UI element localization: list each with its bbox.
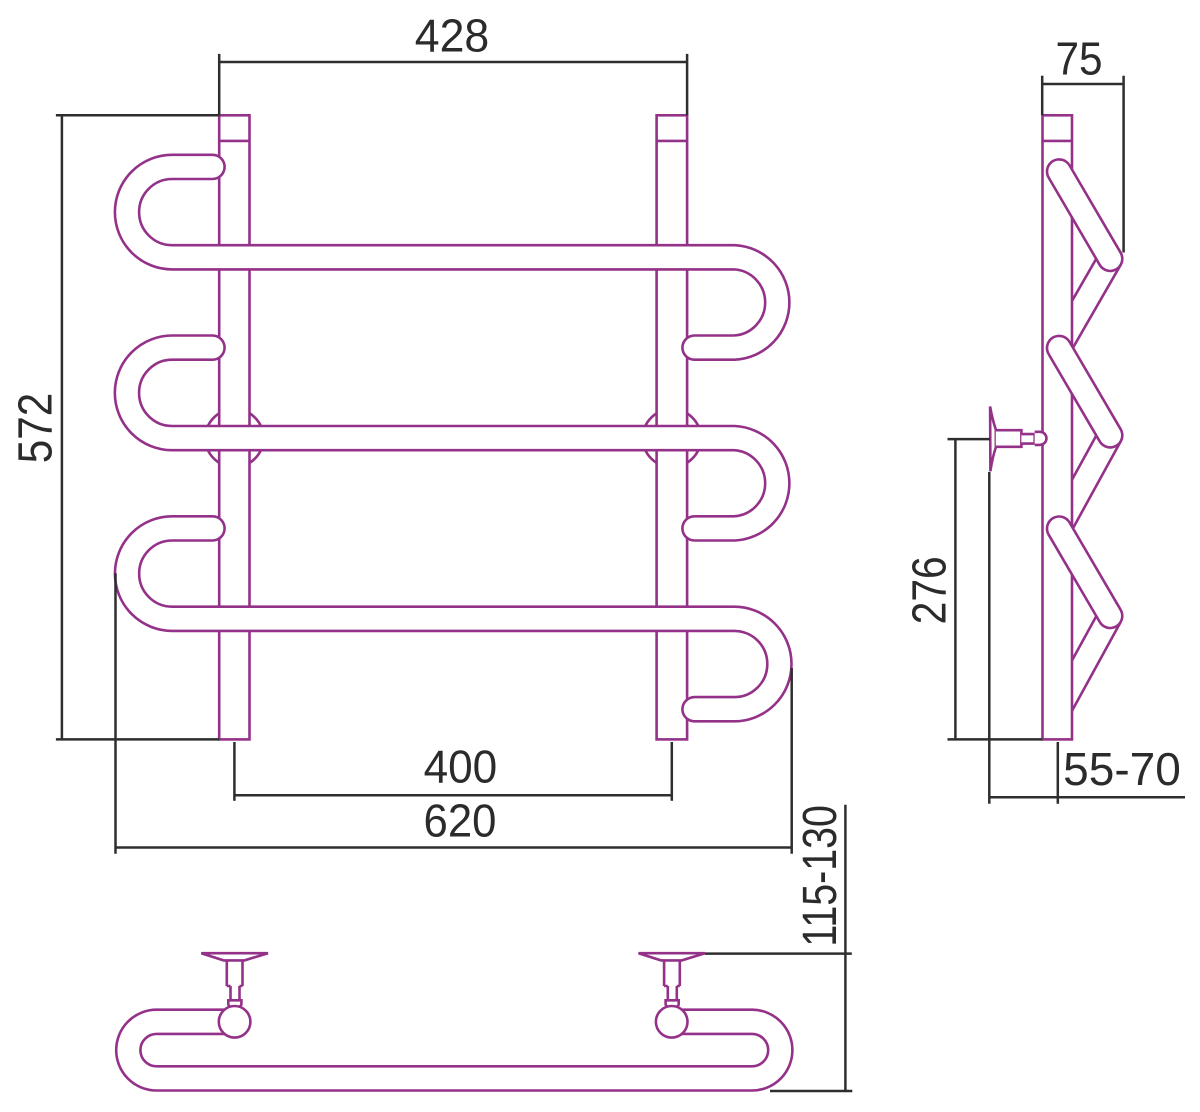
svg-text:115-130: 115-130	[793, 805, 847, 946]
svg-text:620: 620	[424, 795, 497, 847]
svg-text:75: 75	[1055, 34, 1102, 85]
svg-text:400: 400	[424, 741, 498, 793]
svg-text:428: 428	[415, 10, 489, 62]
svg-text:572: 572	[8, 393, 62, 463]
svg-text:276: 276	[903, 556, 956, 624]
svg-text:55-70: 55-70	[1063, 743, 1181, 795]
